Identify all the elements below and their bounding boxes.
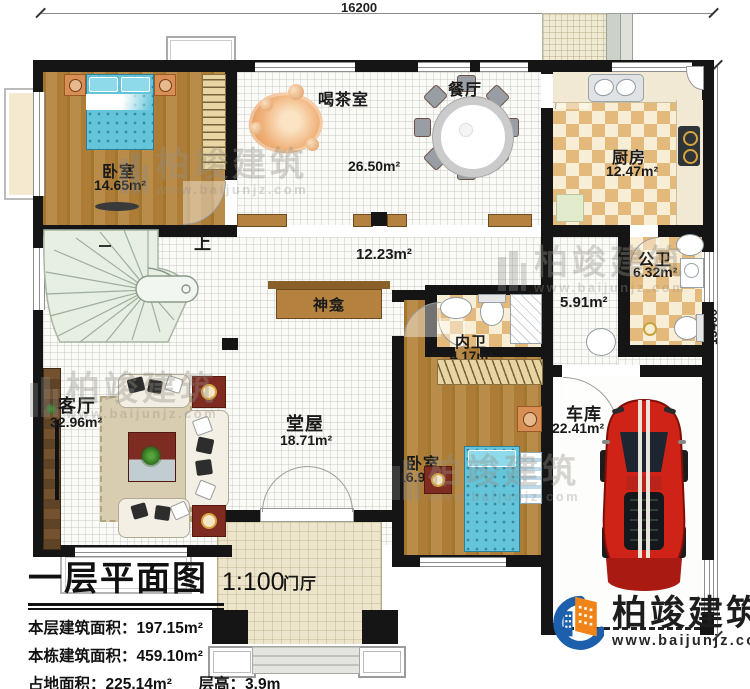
wall xyxy=(225,60,237,180)
window xyxy=(480,62,528,72)
foyer-label: 门厅 xyxy=(283,570,317,594)
main-hall-area: 18.71m² xyxy=(280,432,332,448)
wall xyxy=(352,510,394,522)
right-dimension-line xyxy=(717,65,718,637)
stair-mark xyxy=(99,245,111,247)
pillow xyxy=(89,77,118,92)
window xyxy=(612,62,692,72)
wall xyxy=(225,510,262,522)
title-rule xyxy=(28,608,224,610)
spiral-staircase xyxy=(40,228,200,346)
top-dimension-label: 16200 xyxy=(341,0,377,15)
cabinet xyxy=(237,214,287,227)
brand-logo: 柏竣建筑 www.baijunjz.com xyxy=(550,589,750,655)
shrine-label: 神龛 xyxy=(313,294,345,315)
wall xyxy=(618,225,630,357)
wardrobe xyxy=(202,74,226,170)
dining-label: 餐厅 xyxy=(448,76,482,100)
cushion xyxy=(195,459,213,476)
side-table-lamp xyxy=(201,513,217,529)
nightstand xyxy=(154,74,176,96)
toilet-tank xyxy=(696,314,704,342)
wall xyxy=(553,365,562,377)
stat-line: 本层建筑面积：197.15m² xyxy=(28,616,285,638)
window xyxy=(255,62,355,72)
stat-line: 占地面积：225.14m² 层高：3.9m xyxy=(28,672,285,689)
plant xyxy=(142,447,160,465)
shrine-board xyxy=(268,281,390,289)
garage-area: 22.41m² xyxy=(552,420,604,436)
cabinet xyxy=(387,214,407,227)
sink-icon xyxy=(440,297,472,319)
window xyxy=(33,92,45,196)
plan-scale: 1:100 xyxy=(222,568,285,597)
stove-burner xyxy=(683,131,698,146)
column xyxy=(222,338,238,350)
brand-name: 柏竣建筑 xyxy=(612,596,750,631)
living-area: 32.96m² xyxy=(50,414,102,430)
rear-porch-panel xyxy=(620,13,633,65)
bedroom1-area: 14.65m² xyxy=(94,177,146,193)
door-mat-ornament xyxy=(431,473,445,487)
kitchen-area: 12.47m² xyxy=(606,163,658,179)
bed-sheet xyxy=(86,94,152,110)
cushion xyxy=(154,505,171,521)
basin-icon xyxy=(586,328,616,356)
wall xyxy=(618,345,714,357)
cabinet xyxy=(488,214,532,227)
window xyxy=(418,62,470,72)
dining-table-center xyxy=(459,123,473,137)
shrine-cabinet: 神龛 xyxy=(276,289,382,319)
corridor-area: 5.91m² xyxy=(560,294,608,311)
plant xyxy=(46,404,56,414)
sink-icon xyxy=(676,234,704,256)
toilet-tank xyxy=(478,294,506,303)
decor-stone xyxy=(288,84,304,100)
wall xyxy=(553,225,600,237)
wall xyxy=(33,310,43,557)
nightstand xyxy=(64,74,86,96)
cushion xyxy=(147,379,163,394)
brand-logo-icon xyxy=(550,589,604,655)
tea-room-label: 喝茶室 xyxy=(318,86,369,110)
stairs-up-label: 上 xyxy=(194,229,212,254)
column xyxy=(371,212,387,226)
pillar-base xyxy=(358,646,406,678)
bedside-unit xyxy=(520,452,542,504)
decor-stone xyxy=(250,122,263,135)
window xyxy=(420,557,506,567)
title-block: 一层平面图 1:100 本层建筑面积：197.15m² 本栋建筑面积：459.1… xyxy=(28,551,285,689)
hallway-area: 12.23m² xyxy=(356,246,412,263)
dining-table xyxy=(433,97,513,177)
wall xyxy=(541,60,553,74)
car xyxy=(600,398,688,605)
decor-stone xyxy=(306,138,319,151)
stove-burner xyxy=(683,149,698,164)
brand-url: www.baijunjz.com xyxy=(612,633,750,649)
wall xyxy=(392,336,404,567)
decor-stone xyxy=(260,98,273,111)
public-bath-area: 6.32m² xyxy=(633,264,677,280)
window xyxy=(704,252,714,302)
plan-title: 一层平面图 xyxy=(28,551,208,600)
shower-icon xyxy=(510,294,542,344)
floor-drain xyxy=(643,322,657,336)
washing-machine-drum xyxy=(684,263,699,278)
rear-porch-panel xyxy=(606,13,621,65)
wardrobe xyxy=(437,359,543,385)
floor-plan: 16200 13400 xyxy=(0,0,750,689)
cabinet xyxy=(353,214,373,227)
nightstand xyxy=(517,406,542,432)
chair xyxy=(414,118,431,137)
wall xyxy=(33,60,43,92)
pillow xyxy=(468,450,516,467)
tea-room-area: 26.50m² xyxy=(348,158,400,174)
wall xyxy=(392,290,404,302)
wall xyxy=(640,365,714,377)
pillow xyxy=(121,77,150,92)
title-rule xyxy=(28,603,224,606)
cushion xyxy=(196,437,215,455)
rear-porch xyxy=(542,13,608,65)
porch-pillar xyxy=(362,610,398,644)
floor-mat xyxy=(556,194,584,222)
side-table-lamp xyxy=(201,384,217,400)
tv xyxy=(95,202,139,211)
stat-line: 本栋建筑面积：459.10m² xyxy=(28,644,285,666)
tv xyxy=(55,420,59,500)
